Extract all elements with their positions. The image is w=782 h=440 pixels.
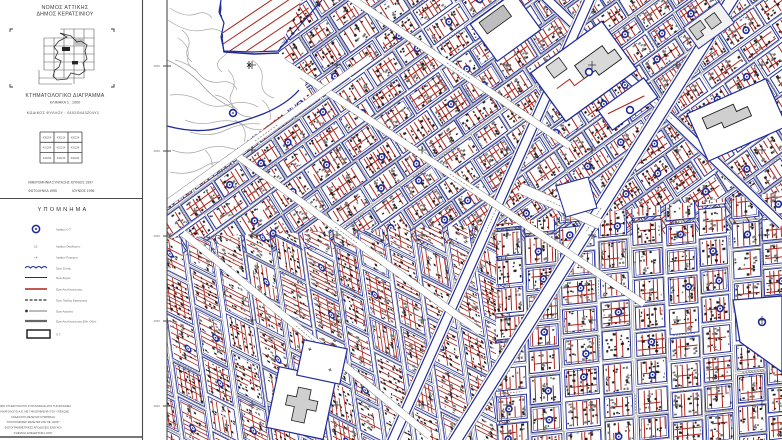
svg-text:ΚΤΗΜΑΤΟΛΟΓΙΟ Α.Ε. ΜΕ ΤΗΝ ΕΠΙΒΛ: ΚΤΗΜΑΤΟΛΟΓΙΟ Α.Ε. ΜΕ ΤΗΝ ΕΠΙΒΛΕΨΗ ΤΟΥ ΥΠ…	[0, 409, 69, 413]
svg-text:ΚΤΗΜΑΤΟΛΟΓΙΚΟ ΔΙΑΓΡΑΜΜΑ: ΚΤΗΜΑΤΟΛΟΓΙΚΟ ΔΙΑΓΡΑΜΜΑ	[25, 93, 104, 99]
svg-text:Όριο Απαλλοτρίωσης: Όριο Απαλλοτρίωσης	[55, 288, 83, 292]
svg-text:Αριθμοί Οικοδομών: Αριθμοί Οικοδομών	[56, 245, 81, 249]
svg-text:430204: 430204	[43, 135, 52, 139]
svg-text:4650: 4650	[153, 149, 160, 153]
svg-text:Αριθμοί Παροχών: Αριθμοί Παροχών	[56, 256, 78, 260]
svg-text:Όριο Απαλλοτρίωσης Εθν. Οδού: Όριο Απαλλοτρίωσης Εθν. Οδού	[55, 320, 97, 324]
svg-text:432214: 432214	[57, 156, 66, 160]
svg-text:430214: 430214	[57, 135, 66, 139]
svg-text:ΚΩΔΙΚΟΣ ΦΥΛΛΟΥ : 0402Θ443Ζ04Υ: ΚΩΔΙΚΟΣ ΦΥΛΛΟΥ : 0402Θ443Ζ04Υ1	[27, 111, 99, 115]
svg-text:ΙΟΥΝΙΟΣ 1996: ΙΟΥΝΙΟΣ 1996	[72, 189, 94, 193]
svg-text:4650: 4650	[153, 64, 160, 68]
svg-text:ΕΘΝΙΚΟ ΚΤΗΜΑΤΟΛΟΓΙΟ ΣΥΝΤΑΧΘΗΚΕ: ΕΘΝΙΚΟ ΚΤΗΜΑΤΟΛΟΓΙΟ ΣΥΝΤΑΧΘΗΚΕ ΑΠΟ ΤΗΝ Ε…	[0, 404, 71, 408]
svg-text:Όριο Ζώνης: Όριο Ζώνης	[55, 267, 72, 271]
svg-text:ΑΝΑΔΟΧΟΣ ΜΕΛΕΤΗΣ ΣΥΜΠΡΑΞΗ: ΑΝΑΔΟΧΟΣ ΜΕΛΕΤΗΣ ΣΥΜΠΡΑΞΗ	[11, 415, 55, 419]
svg-text:431214: 431214	[57, 146, 66, 150]
svg-text:432204: 432204	[43, 156, 52, 160]
svg-text:4650: 4650	[153, 234, 160, 238]
svg-text:ΤΟΠΟΓΡΑΦΙΚΕΣ ΜΕΛΕΤΕΣ ΑΤΕ ΟΕ: ΤΟΠΟΓΡΑΦΙΚΕΣ ΜΕΛΕΤΕΣ ΑΤΕ ΟΕ 102/97	[6, 420, 60, 424]
svg-text:Όριο Πράξης Εφαρμογής: Όριο Πράξης Εφαρμογής	[55, 299, 88, 303]
svg-text:ΝΟΜΟΣ ΑΤΤΙΚΗΣ: ΝΟΜΟΣ ΑΤΤΙΚΗΣ	[42, 5, 89, 11]
svg-text:ΚΛΙΜΑΚΑ 1 : 1000: ΚΛΙΜΑΚΑ 1 : 1000	[50, 101, 81, 105]
svg-text:432224: 432224	[71, 156, 80, 160]
svg-text:ΦΩΤΟΓΡΑΜΜΕΤΡΙΚΕΣ ΑΠΟΔΟΣΕΙΣ ΕΛΕ: ΦΩΤΟΓΡΑΜΜΕΤΡΙΚΕΣ ΑΠΟΔΟΣΕΙΣ ΕΛΕΓΧΟΙ	[5, 426, 62, 430]
svg-text:ΨΗΦΙΑΚΗ ΕΠΕΞΕΡΓΑΣΙΑ 10/97: ΨΗΦΙΑΚΗ ΕΠΕΞΕΡΓΑΣΙΑ 10/97	[14, 431, 53, 435]
svg-text:Αριθμοί Ο.Τ.: Αριθμοί Ο.Τ.	[56, 228, 72, 232]
svg-text:4650: 4650	[153, 319, 160, 323]
svg-text:430224: 430224	[71, 135, 80, 139]
svg-text:ΗΜΕΡΟΜΗΝΙΑ ΣΥΝΤΑΞΗΣ ΙΟΥΝΙΟΣ: ΗΜΕΡΟΜΗΝΙΑ ΣΥΝΤΑΞΗΣ ΙΟΥΝΙΟΣ 1997	[28, 181, 93, 185]
svg-text:431224: 431224	[71, 146, 80, 150]
svg-text:Όριο Δήμου: Όριο Δήμου	[55, 276, 71, 280]
svg-text:Ο.Τ.: Ο.Τ.	[56, 333, 61, 337]
svg-text:ΦΩΤΟΛΗΨΙΑ 1995: ΦΩΤΟΛΗΨΙΑ 1995	[28, 189, 57, 193]
svg-text:431204: 431204	[43, 146, 52, 150]
svg-text:12: 12	[34, 245, 38, 249]
svg-text:4650: 4650	[153, 404, 160, 408]
svg-text:ΔΗΜΟΣ ΚΕΡΑΤΣΙΝΙΟΥ: ΔΗΜΟΣ ΚΕΡΑΤΣΙΝΙΟΥ	[36, 12, 93, 18]
svg-text:ΥΠΟΜΝΗΜΑ: ΥΠΟΜΝΗΜΑ	[38, 207, 89, 213]
svg-text:Όριο Αιγιαλού: Όριο Αιγιαλού	[55, 310, 74, 314]
svg-text:+4: +4	[34, 256, 38, 260]
